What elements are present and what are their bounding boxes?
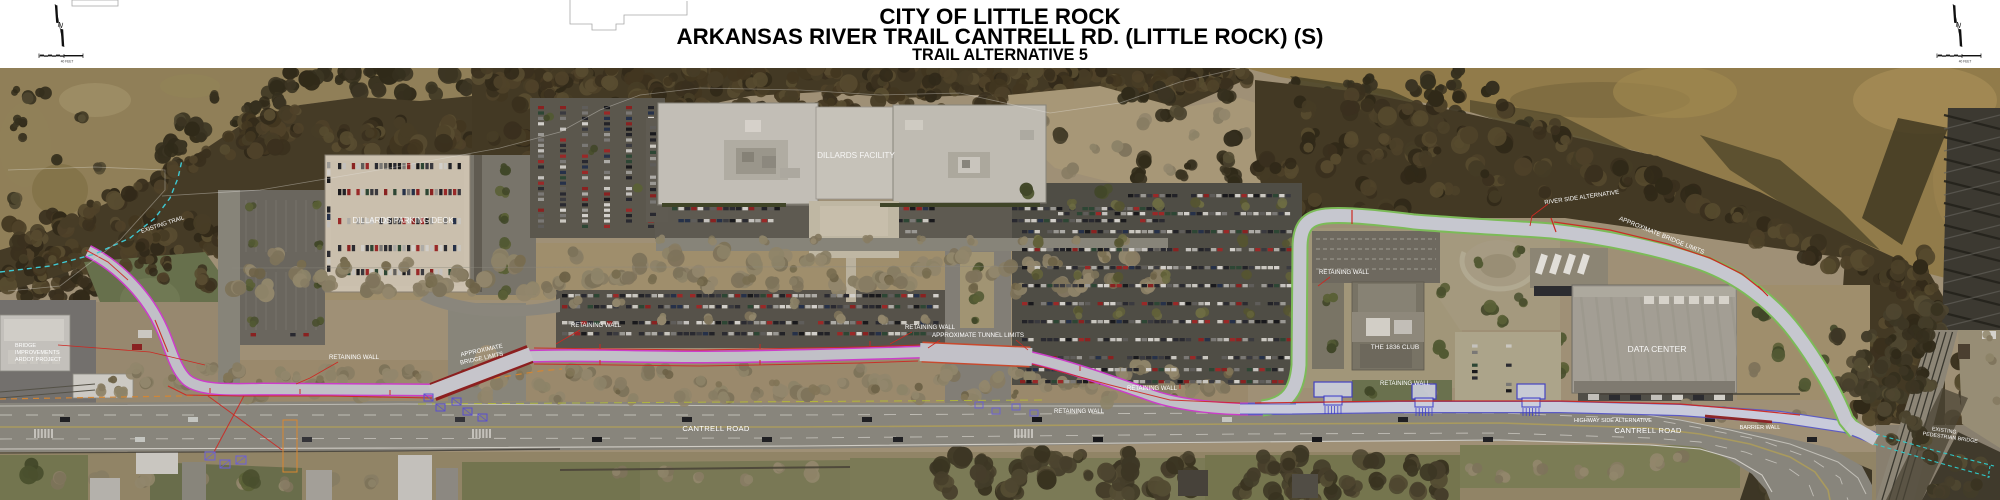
- svg-text:HIGHWAY SIDE ALTERNATIVE: HIGHWAY SIDE ALTERNATIVE: [1574, 418, 1652, 424]
- svg-text:40 FEET: 40 FEET: [1959, 60, 1972, 64]
- svg-text:APPROXIMATE TUNNEL LIMITS: APPROXIMATE TUNNEL LIMITS: [932, 332, 1024, 339]
- svg-text:RETAINING WALL: RETAINING WALL: [1054, 409, 1105, 415]
- svg-text:CANTRELL ROAD: CANTRELL ROAD: [682, 424, 750, 433]
- svg-text:IMPROVEMENTS: IMPROVEMENTS: [15, 350, 60, 356]
- svg-text:RETAINING WALL: RETAINING WALL: [1127, 386, 1178, 392]
- svg-text:RETAINING WALL: RETAINING WALL: [1319, 270, 1370, 276]
- svg-text:ARDOT PROJECT: ARDOT PROJECT: [15, 357, 62, 363]
- svg-text:RETAINING WALL: RETAINING WALL: [905, 325, 956, 331]
- svg-text:CANTRELL ROAD: CANTRELL ROAD: [1614, 426, 1682, 435]
- svg-text:40 FEET: 40 FEET: [61, 60, 74, 64]
- svg-text:BARRIER WALL: BARRIER WALL: [1740, 425, 1781, 431]
- svg-text:RETAINING WALL: RETAINING WALL: [571, 323, 622, 329]
- svg-text:RETAINING WALL: RETAINING WALL: [329, 355, 380, 361]
- svg-text:RETAINING WALL: RETAINING WALL: [1380, 381, 1431, 387]
- svg-text:BRIDGE: BRIDGE: [15, 343, 36, 349]
- svg-text:TRAIL ALTERNATIVE 5: TRAIL ALTERNATIVE 5: [912, 46, 1088, 64]
